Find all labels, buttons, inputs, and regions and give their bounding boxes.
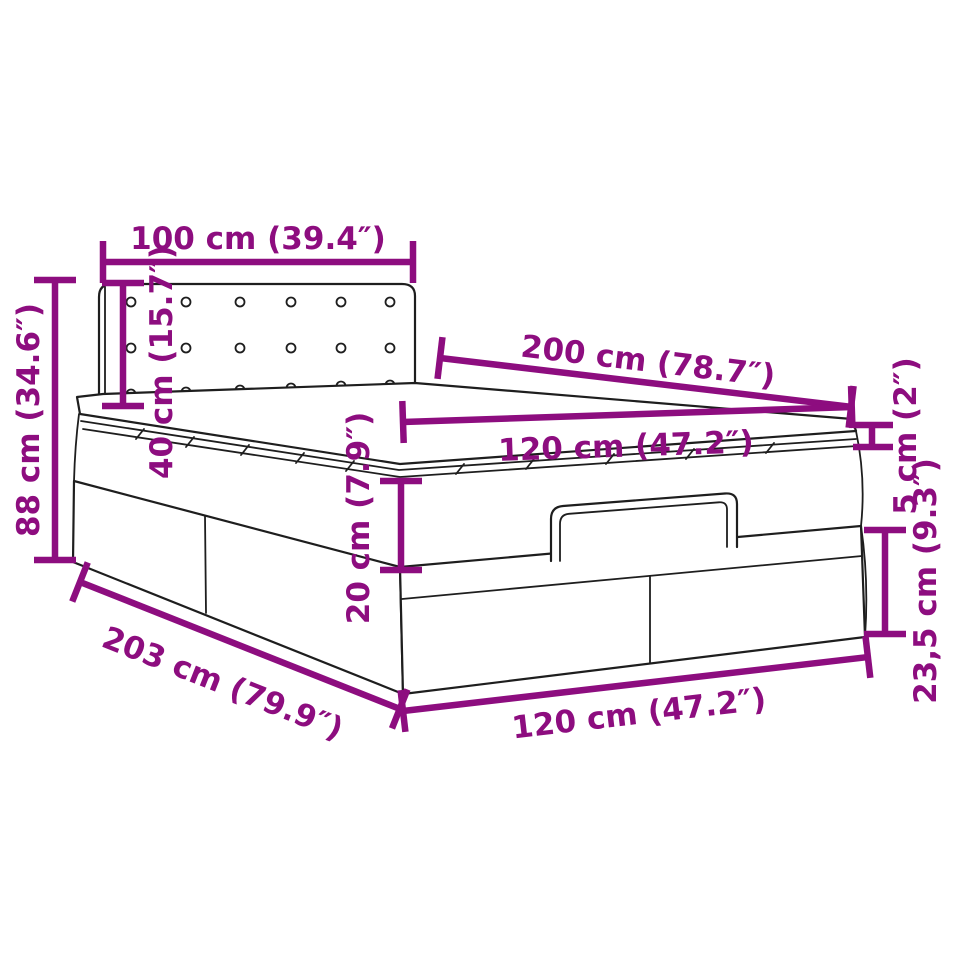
dim-label-overall-height: 88 cm (34.6″) [11,303,47,537]
dim-label-base-height: 23,5 cm (9.3″) [908,458,944,704]
dim-overall-height: 88 cm (34.6″) [11,280,76,560]
dim-label-headboard-height: 40 cm (15.7″) [144,245,180,479]
dimension-diagram: 100 cm (39.4″) 88 cm (34.6″) 40 cm (15.7… [0,0,955,955]
dim-label-mattress-thickness: 20 cm (7.9″) [341,412,377,625]
drawer-seam-left [205,516,206,613]
bed-drawing [73,284,866,694]
dim-label-mattress-width-top: 120 cm (47.2″) [498,424,755,469]
bed-illustration: 100 cm (39.4″) 88 cm (34.6″) 40 cm (15.7… [0,0,955,955]
